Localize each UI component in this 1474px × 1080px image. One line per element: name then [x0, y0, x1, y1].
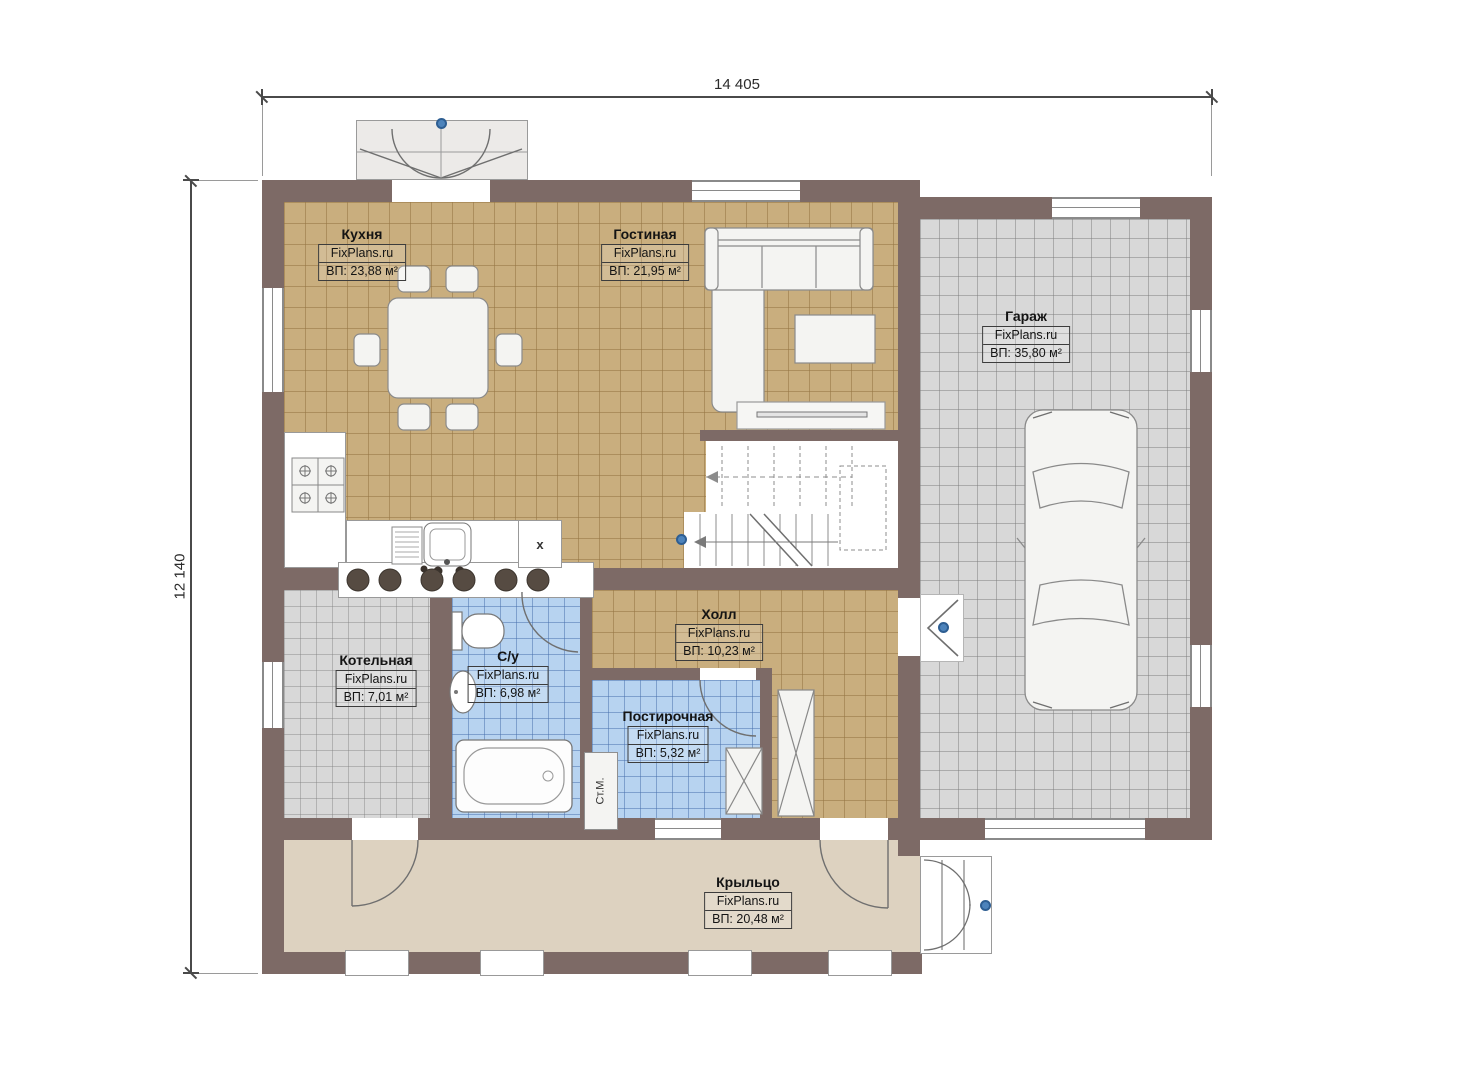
- room-name: Кухня: [318, 226, 406, 242]
- room-area: ВП: 35,80 м²: [983, 344, 1069, 362]
- room-area: ВП: 21,95 м²: [602, 262, 688, 280]
- room-label-laundry: Постирочная FixPlans.ru ВП: 5,32 м²: [623, 708, 714, 763]
- room-label-kitchen: Кухня FixPlans.ru ВП: 23,88 м²: [318, 226, 406, 281]
- garage-door-opening: [985, 818, 1145, 840]
- room-brand: FixPlans.ru: [983, 327, 1069, 344]
- marker-entry-door: [436, 118, 447, 129]
- room-name: Холл: [675, 606, 763, 622]
- porch-post: [828, 950, 892, 976]
- room-area: ВП: 5,32 м²: [629, 744, 708, 762]
- dimension-width-label: 14 405: [687, 76, 787, 93]
- extension-line: [262, 104, 263, 176]
- laundry-door-opening: [700, 668, 756, 680]
- garage-right-window-1: [1190, 310, 1212, 372]
- hall-garage-door-opening: [898, 598, 920, 656]
- room-brand: FixPlans.ru: [676, 625, 762, 642]
- dimension-height-label: 12 140: [172, 527, 189, 627]
- room-brand: FixPlans.ru: [319, 245, 405, 262]
- room-brand: FixPlans.ru: [337, 671, 416, 688]
- room-label-boiler: Котельная FixPlans.ru ВП: 7,01 м²: [336, 652, 417, 707]
- cabinet-x-mark: x: [536, 537, 543, 552]
- room-name: Гостиная: [601, 226, 689, 242]
- room-brand: FixPlans.ru: [629, 727, 708, 744]
- room-area: ВП: 6,98 м²: [469, 684, 548, 702]
- kitchen-cabinet-x: x: [518, 520, 562, 568]
- dimension-line-left: [190, 180, 192, 974]
- room-label-bathroom: С/у FixPlans.ru ВП: 6,98 м²: [468, 648, 549, 703]
- room-label-porch: Крыльцо FixPlans.ru ВП: 20,48 м²: [704, 874, 792, 929]
- porch-post: [480, 950, 544, 976]
- washing-machine: Ст.М.: [584, 752, 618, 830]
- room-label-garage: Гараж FixPlans.ru ВП: 35,80 м²: [982, 308, 1070, 363]
- kitchen-window: [262, 288, 284, 392]
- boiler-room-window: [262, 662, 284, 728]
- room-brand: FixPlans.ru: [469, 667, 548, 684]
- marker-stairs: [676, 534, 687, 545]
- wall-laundry-right: [760, 668, 772, 818]
- marker-garage-door: [938, 622, 949, 633]
- room-name: Постирочная: [623, 708, 714, 724]
- kitchen-counter-left: [284, 432, 346, 568]
- room-name: Котельная: [336, 652, 417, 668]
- stairwell-lower-flight-area: [684, 512, 898, 568]
- room-name: Крыльцо: [704, 874, 792, 890]
- floor-plan: 14 405 12 140 x: [0, 0, 1474, 1080]
- extension-line: [196, 180, 258, 181]
- stairwell-upper-flight-area: [706, 440, 898, 512]
- room-name: С/у: [468, 648, 549, 664]
- garage-top-window: [1052, 197, 1140, 219]
- room-label-living: Гостиная FixPlans.ru ВП: 21,95 м²: [601, 226, 689, 281]
- room-label-hall: Холл FixPlans.ru ВП: 10,23 м²: [675, 606, 763, 661]
- room-brand: FixPlans.ru: [602, 245, 688, 262]
- room-brand: FixPlans.ru: [705, 893, 791, 910]
- boiler-porch-door-opening: [352, 818, 418, 840]
- hall-porch-door-opening: [820, 818, 888, 840]
- room-area: ВП: 10,23 м²: [676, 642, 762, 660]
- wall-stairwell-top: [700, 430, 898, 441]
- wall-porch-right-stub: [898, 840, 920, 856]
- floor-porch: [284, 840, 920, 952]
- garage-right-window-2: [1190, 645, 1212, 707]
- laundry-window: [655, 818, 721, 840]
- extension-line: [196, 973, 258, 974]
- front-door-opening: [392, 180, 490, 202]
- room-area: ВП: 7,01 м²: [337, 688, 416, 706]
- porch-post: [345, 950, 409, 976]
- entry-vestibule: [356, 120, 528, 180]
- living-room-window: [692, 180, 800, 202]
- room-name: Гараж: [982, 308, 1070, 324]
- extension-line: [1211, 104, 1212, 176]
- floor-bathroom: [452, 590, 580, 818]
- dimension-line-top: [262, 96, 1212, 98]
- washing-machine-label: Ст.М.: [595, 777, 607, 804]
- room-area: ВП: 23,88 м²: [319, 262, 405, 280]
- room-area: ВП: 20,48 м²: [705, 910, 791, 928]
- porch-post: [688, 950, 752, 976]
- marker-porch-door: [980, 900, 991, 911]
